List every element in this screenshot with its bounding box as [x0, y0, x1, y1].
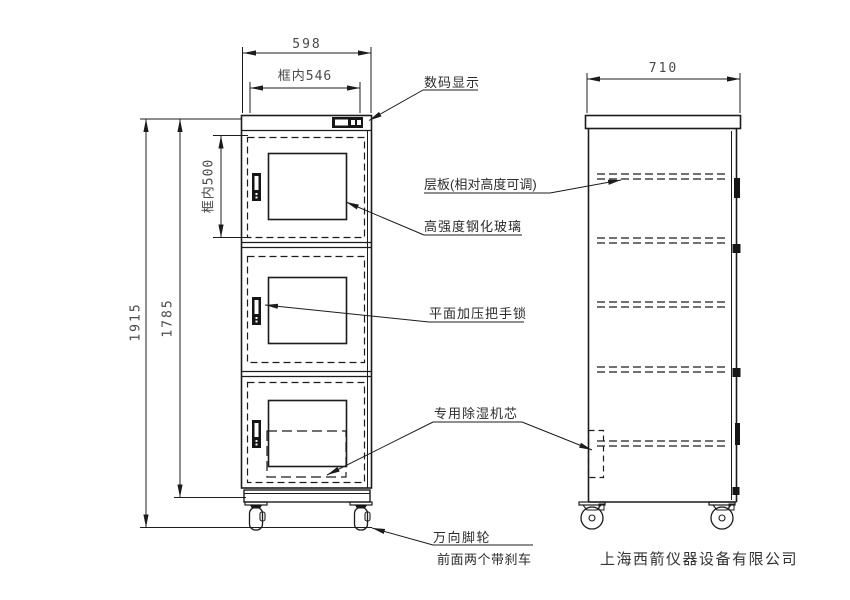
- company-name: 上海西箭仪器设备有限公司: [600, 548, 798, 569]
- callout-shelf: 层板(相对高度可调): [424, 174, 537, 193]
- side-shelves: [597, 174, 727, 446]
- callout-casters-line2: 前面两个带刹车: [437, 549, 532, 568]
- dim-500-text: 框内500: [198, 159, 217, 213]
- side-caster-left: [579, 502, 605, 529]
- dim-598-text: 598: [243, 37, 371, 52]
- door3-dehumidifier-dashed: [267, 431, 346, 477]
- front-view: [242, 116, 373, 531]
- callout-tempered-glass: 高强度钢化玻璃: [424, 216, 522, 235]
- dim-710-text: 710: [587, 61, 740, 76]
- callout-digital-display: 数码显示: [424, 72, 480, 91]
- dimension-lines: [140, 47, 740, 528]
- door2-glass-window: [269, 278, 347, 344]
- callout-handle-lock: 平面加压把手锁: [429, 303, 527, 322]
- leader-dehumidifier-right: [522, 422, 592, 450]
- digital-display: [332, 117, 363, 128]
- leader-glass: [346, 202, 424, 235]
- callout-dehumidifier-core: 专用除湿机芯: [434, 403, 518, 422]
- technical-drawing-canvas: 598 框内546 710 框内500 1915 1785 数码显示 层板(相对…: [0, 0, 850, 600]
- front-door-1: [248, 138, 365, 238]
- front-caster-right: [350, 502, 372, 530]
- callout-casters-line1: 万向脚轮: [433, 527, 491, 546]
- door3-handle: [252, 420, 261, 448]
- side-view: [579, 116, 741, 530]
- door2-handle: [252, 297, 261, 325]
- leader-shelf: [550, 180, 621, 193]
- side-dehumidifier-core: [589, 431, 604, 478]
- side-caster-right: [709, 502, 735, 529]
- door1-glass-window: [269, 154, 347, 220]
- door1-handle: [252, 173, 261, 201]
- leader-display: [369, 90, 423, 121]
- leader-caster: [372, 528, 433, 545]
- front-base: [244, 490, 370, 502]
- leader-dehumidifier-left: [327, 422, 433, 475]
- dim-1785-text: 1785: [161, 298, 176, 337]
- front-door-3: [248, 383, 365, 483]
- dim-1915-text: 1915: [129, 302, 144, 341]
- side-top-band: [586, 116, 741, 129]
- front-caster-left: [245, 502, 267, 530]
- dim-546-text: 框内546: [250, 65, 360, 84]
- door3-glass-window: [269, 401, 347, 467]
